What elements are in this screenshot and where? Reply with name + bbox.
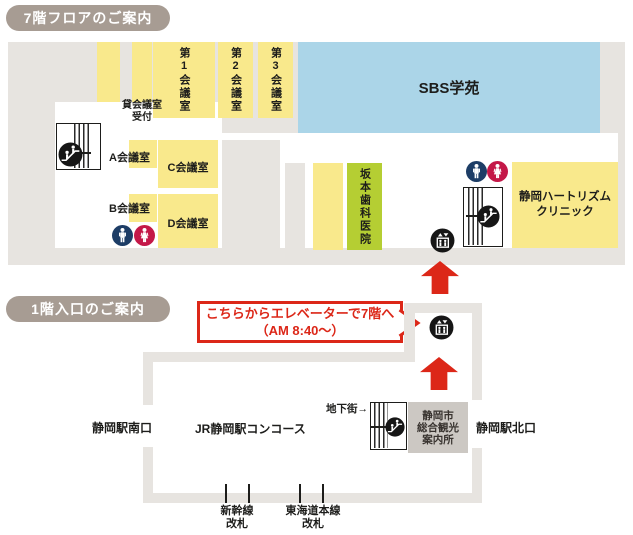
elevator-alcove-wall-top [404,303,482,313]
arrow-up-to-elevator [420,357,458,390]
floor7-block1 [222,140,280,248]
gate-tick [322,484,324,503]
tourist-info-line2: 総合観光 [417,422,459,434]
elevator-callout-line1: こちらからエレベーターで7階へ [206,305,394,322]
tourist-info-box: 静岡市 総合観光 案内所 [408,402,468,453]
room-heart-clinic-line2: クリニック [536,205,594,220]
escalator-icon [58,142,83,167]
room-sbs-gakuen-label: SBS学苑 [419,77,480,98]
room-sakamoto-dental-label: 坂本歯科医院 [357,168,373,246]
floor1-badge-label: 1階入口のご案内 [31,299,145,319]
escalator-entry-line [371,426,386,428]
room-d-label: D会議室 [158,216,218,230]
floor1-section-badge: 1階入口のご案内 [6,296,170,322]
floor7-badge-label: 7階フロアのご案内 [24,8,153,28]
gate-tick [299,484,301,503]
rental-reception-line2: 受付 [132,112,152,124]
elevator-icon [429,315,454,340]
room-meeting-1-label: 第1会議室 [176,47,192,113]
concourse-wall-right-upper [472,303,482,400]
restroom-men-icon [112,225,133,246]
restroom-men-icon [466,161,487,182]
concourse-wall-left-upper [143,352,153,405]
room-meeting-3: 第3会議室 [258,42,293,118]
room-sbs-gakuen: SBS学苑 [298,42,600,133]
elevator-callout: こちらからエレベーターで7階へ （AM 8:40〜） [197,301,403,343]
escalator-icon [477,205,500,228]
arrow-up-to-7f [421,261,459,294]
tourist-info-line3: 案内所 [422,434,454,446]
room-heart-clinic: 静岡ハートリズム クリニック [512,162,618,248]
tokaido-gate-line2: 改札 [275,518,351,531]
room-a-label: A会議室 [109,149,150,165]
gate-tick [248,484,250,503]
north-exit-label: 静岡駅北口 [476,419,536,436]
rental-reception-label: 貸会議室 受付 [107,98,177,126]
floor7-corridor-band [222,133,618,163]
elevator-icon [430,228,455,253]
concourse-wall-bottom [143,493,482,503]
room-meeting-2: 第2会議室 [218,42,253,118]
restroom-women-icon [487,161,508,182]
restroom-women-icon [134,225,155,246]
floor7-corridor-gap2 [305,163,313,248]
tokaido-gate-label: 東海道本線 改札 [275,505,351,531]
south-exit-label: 静岡駅南口 [86,419,152,436]
rental-reception-line1: 貸会議室 [122,100,162,112]
underground-mall-label: 地下街→ [318,401,368,416]
escalator-icon [385,417,405,437]
floor7-section-badge: 7階フロアのご案内 [6,5,170,31]
room-meeting-2-label: 第2会議室 [228,47,244,113]
elevator-callout-line2: （AM 8:40〜） [256,322,345,339]
concourse-wall-top [143,352,415,362]
floor7-strip-right [132,42,152,102]
room-sakamoto-dental: 坂本歯科医院 [347,163,382,250]
shinkansen-gate-label: 新幹線 改札 [205,505,269,531]
tourist-info-line1: 静岡市 [422,410,454,422]
room-b-label: B会議室 [109,200,150,216]
floor7-strip-left [97,42,120,102]
tokaido-gate-line1: 東海道本線 [275,505,351,518]
shinkansen-gate-line1: 新幹線 [205,505,269,518]
gate-tick [225,484,227,503]
shinkansen-gate-line2: 改札 [205,518,269,531]
room-meeting-3-label: 第3会議室 [268,47,284,113]
sakamoto-strip [313,163,343,250]
floor-guide-page: 7階フロアのご案内 第1会議室 第2会議室 第3会議室 SBS学苑 貸会議室 受… [0,0,633,535]
concourse-label: JR静岡駅コンコース [195,420,306,437]
room-heart-clinic-line1: 静岡ハートリズム [519,190,611,205]
room-c-label: C会議室 [158,160,218,174]
floor7-block2 [285,163,305,248]
